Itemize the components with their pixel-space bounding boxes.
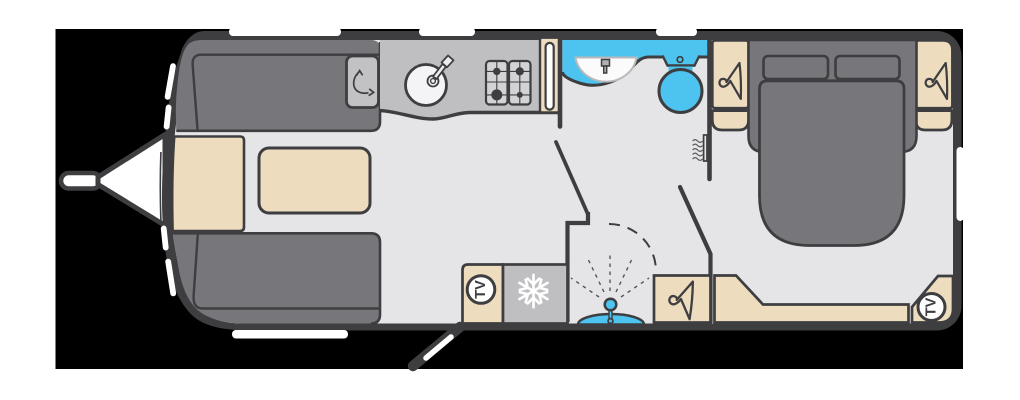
svg-text:TV: TV: [924, 297, 940, 316]
svg-text:TV: TV: [473, 280, 489, 299]
